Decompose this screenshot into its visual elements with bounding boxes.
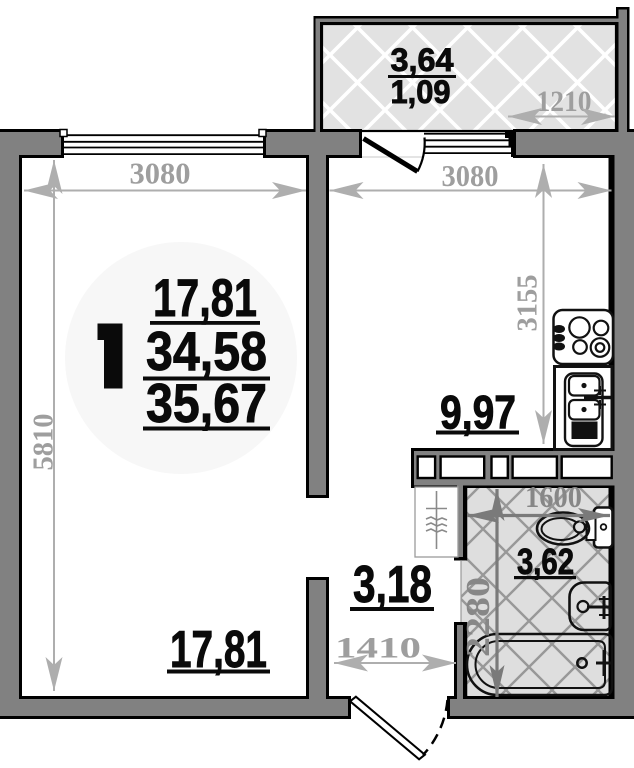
svg-text:35,67: 35,67 xyxy=(146,372,267,434)
svg-text:1600: 1600 xyxy=(525,479,582,514)
svg-text:3155: 3155 xyxy=(512,275,544,332)
svg-text:2280: 2280 xyxy=(460,577,497,657)
svg-text:1210: 1210 xyxy=(537,85,592,118)
svg-text:3080: 3080 xyxy=(130,156,191,191)
svg-text:1,09: 1,09 xyxy=(391,74,451,110)
svg-text:3,64: 3,64 xyxy=(391,42,454,78)
svg-text:3080: 3080 xyxy=(442,158,499,193)
svg-text:3,62: 3,62 xyxy=(517,541,574,582)
svg-text:3,18: 3,18 xyxy=(353,556,432,614)
